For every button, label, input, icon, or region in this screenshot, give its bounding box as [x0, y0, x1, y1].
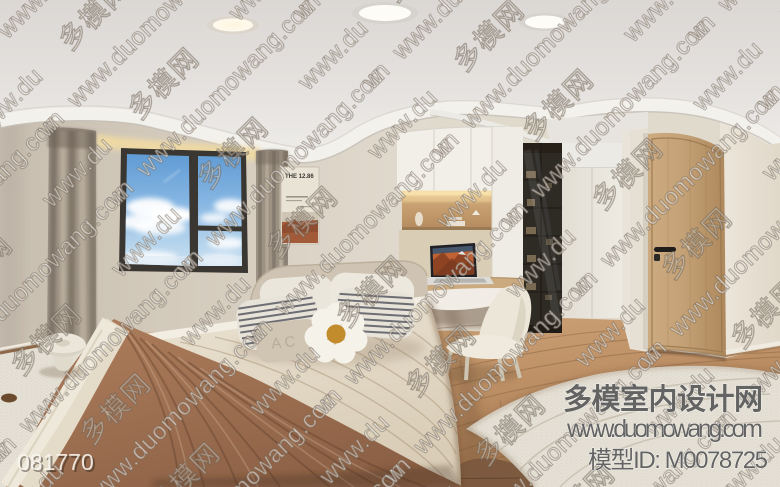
svg-text:模型ID: M0078725: 模型ID: M0078725	[588, 447, 768, 474]
svg-text:081770: 081770	[17, 449, 94, 475]
svg-text:www.duomowang.com: www.duomowang.com	[566, 415, 763, 443]
svg-text:多模室内设计网: 多模室内设计网	[563, 382, 763, 416]
